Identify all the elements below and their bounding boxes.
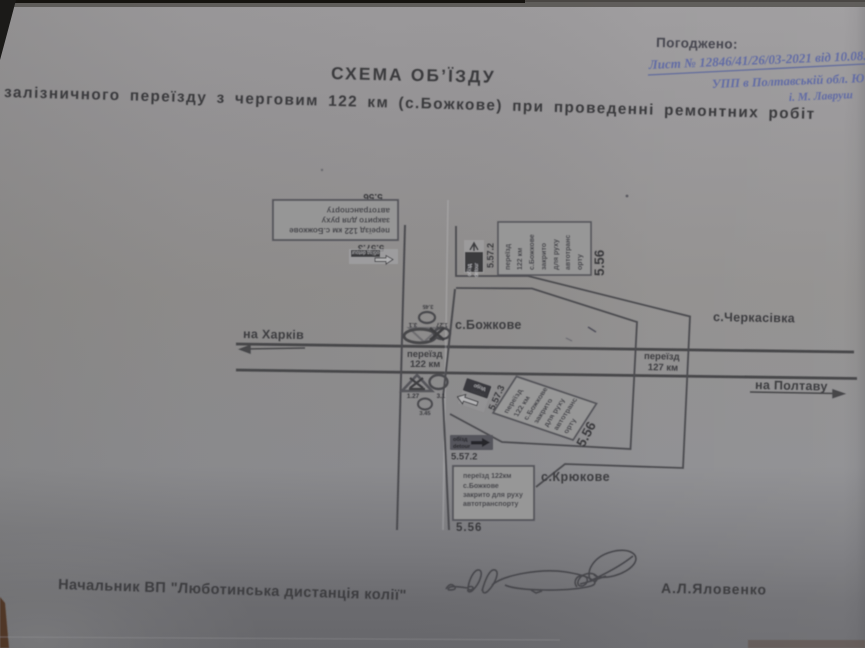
svg-text:3.45: 3.45 — [419, 411, 431, 417]
svg-text:для руху: для руху — [553, 239, 560, 270]
svg-text:с.Божкове: с.Божкове — [455, 318, 522, 332]
svg-text:автотранспорту: автотранспорту — [326, 206, 390, 215]
svg-text:с.Божкове: с.Божкове — [529, 234, 536, 270]
svg-text:1.27: 1.27 — [436, 321, 448, 327]
svg-text:с.Крюкове: с.Крюкове — [541, 470, 610, 484]
svg-text:закрито: закрито — [541, 243, 548, 270]
svg-text:с.Черкасівка: с.Черкасівка — [713, 310, 796, 325]
svg-text:на Харків: на Харків — [243, 327, 304, 342]
svg-text:обїзд: обїзд — [467, 264, 473, 276]
svg-text:на Полтаву: на Полтаву — [755, 378, 828, 394]
svg-text:орту: орту — [577, 254, 584, 270]
svg-text:5.57.2: 5.57.2 — [451, 452, 477, 463]
svg-text:127 км: 127 км — [648, 362, 679, 374]
svg-text:обїзд: обїзд — [453, 436, 468, 443]
svg-text:3.1: 3.1 — [408, 321, 417, 327]
svg-text:закрито для руху: закрито для руху — [463, 492, 523, 499]
svg-text:5.56: 5.56 — [456, 522, 482, 534]
svg-text:автотранспорту: автотранспорту — [463, 501, 519, 508]
svg-text:Погоджено:: Погоджено: — [656, 35, 738, 52]
svg-text:СХЕМА ОБ’ЇЗДУ: СХЕМА ОБ’ЇЗДУ — [331, 63, 496, 87]
svg-text:122 км: 122 км — [410, 359, 440, 370]
svg-text:автотранс: автотранс — [565, 235, 572, 270]
svg-text:переїзд 122км: переїзд 122км — [463, 473, 512, 480]
svg-text:переїзд: переїзд — [505, 243, 512, 270]
svg-text:3.1: 3.1 — [437, 393, 446, 400]
svg-text:5.56: 5.56 — [592, 249, 607, 276]
svg-text:закрито для руху: закрито для руху — [321, 216, 390, 225]
svg-text:обїзд detour: обїзд detour — [351, 249, 379, 255]
svg-text:122 км: 122 км — [517, 248, 524, 270]
svg-text:с.Божкове: с.Божкове — [463, 483, 499, 490]
svg-text:переїзд 122 км с.Божкове: переїзд 122 км с.Божкове — [289, 226, 390, 235]
svg-text:5.57.2: 5.57.2 — [486, 243, 496, 268]
svg-text:detour: detour — [474, 263, 480, 278]
svg-text:А.Л.Яловенко: А.Л.Яловенко — [661, 580, 767, 597]
svg-text:detour: detour — [453, 444, 471, 450]
svg-text:3.45: 3.45 — [423, 303, 434, 309]
svg-text:переїзд: переїзд — [644, 351, 680, 363]
svg-text:1.27: 1.27 — [407, 393, 420, 400]
